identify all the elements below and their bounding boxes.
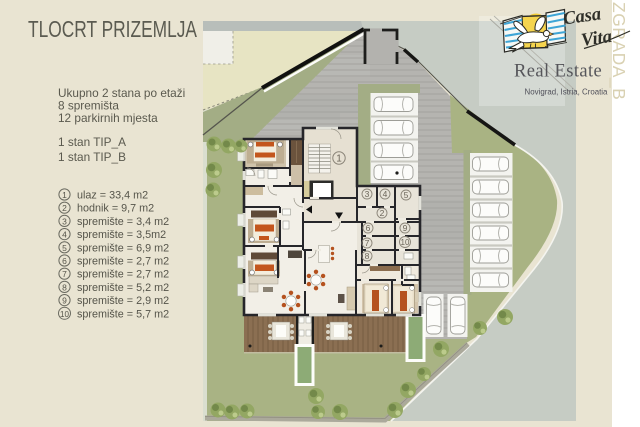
- svg-text:6: 6: [62, 256, 67, 266]
- svg-text:4: 4: [383, 189, 388, 199]
- svg-text:Vita: Vita: [580, 27, 613, 51]
- svg-text:5: 5: [404, 190, 409, 200]
- svg-text:10: 10: [401, 238, 410, 247]
- svg-text:spremište = 2,7 m2: spremište = 2,7 m2: [77, 256, 169, 268]
- svg-text:9: 9: [403, 223, 408, 233]
- svg-text:10: 10: [60, 310, 69, 319]
- svg-text:8: 8: [62, 282, 67, 292]
- svg-text:Novigrad, Istria, Croatia: Novigrad, Istria, Croatia: [525, 88, 608, 97]
- svg-text:ZGRADA_B: ZGRADA_B: [608, 2, 629, 100]
- svg-text:7: 7: [62, 269, 67, 279]
- svg-text:9: 9: [62, 296, 67, 306]
- svg-text:hodnik = 9,7 m2: hodnik = 9,7 m2: [77, 203, 154, 215]
- svg-text:1: 1: [62, 190, 67, 200]
- svg-text:3: 3: [365, 189, 370, 199]
- svg-text:spremište = 3,5m2: spremište = 3,5m2: [77, 229, 166, 241]
- svg-text:1 stan TIP_A: 1 stan TIP_A: [58, 135, 126, 149]
- svg-text:spremište = 6,9 m2: spremište = 6,9 m2: [77, 242, 169, 254]
- svg-text:12 parkirnih mjesta: 12 parkirnih mjesta: [58, 111, 158, 125]
- svg-text:1 stan TIP_B: 1 stan TIP_B: [58, 150, 126, 164]
- svg-text:Real Estate: Real Estate: [514, 62, 602, 82]
- svg-text:2: 2: [380, 208, 385, 218]
- svg-text:spremište = 5,7 m2: spremište = 5,7 m2: [77, 308, 169, 320]
- svg-text:spremište = 2,7 m2: spremište = 2,7 m2: [77, 269, 169, 281]
- svg-text:8: 8: [365, 251, 370, 261]
- svg-text:5: 5: [62, 243, 67, 253]
- svg-text:spremište = 3,4 m2: spremište = 3,4 m2: [77, 216, 169, 228]
- svg-text:spremište = 5,2 m2: spremište = 5,2 m2: [77, 282, 169, 294]
- svg-text:TLOCRT PRIZEMLJA: TLOCRT PRIZEMLJA: [28, 16, 197, 42]
- svg-text:2: 2: [62, 203, 67, 213]
- svg-text:3: 3: [62, 216, 67, 226]
- svg-text:7: 7: [365, 238, 370, 248]
- svg-text:ulaz = 33,4 m2: ulaz = 33,4 m2: [77, 190, 148, 202]
- svg-text:4: 4: [62, 230, 67, 240]
- svg-text:6: 6: [366, 223, 371, 233]
- svg-text:spremište = 2,9 m2: spremište = 2,9 m2: [77, 295, 169, 307]
- svg-text:1: 1: [336, 154, 342, 165]
